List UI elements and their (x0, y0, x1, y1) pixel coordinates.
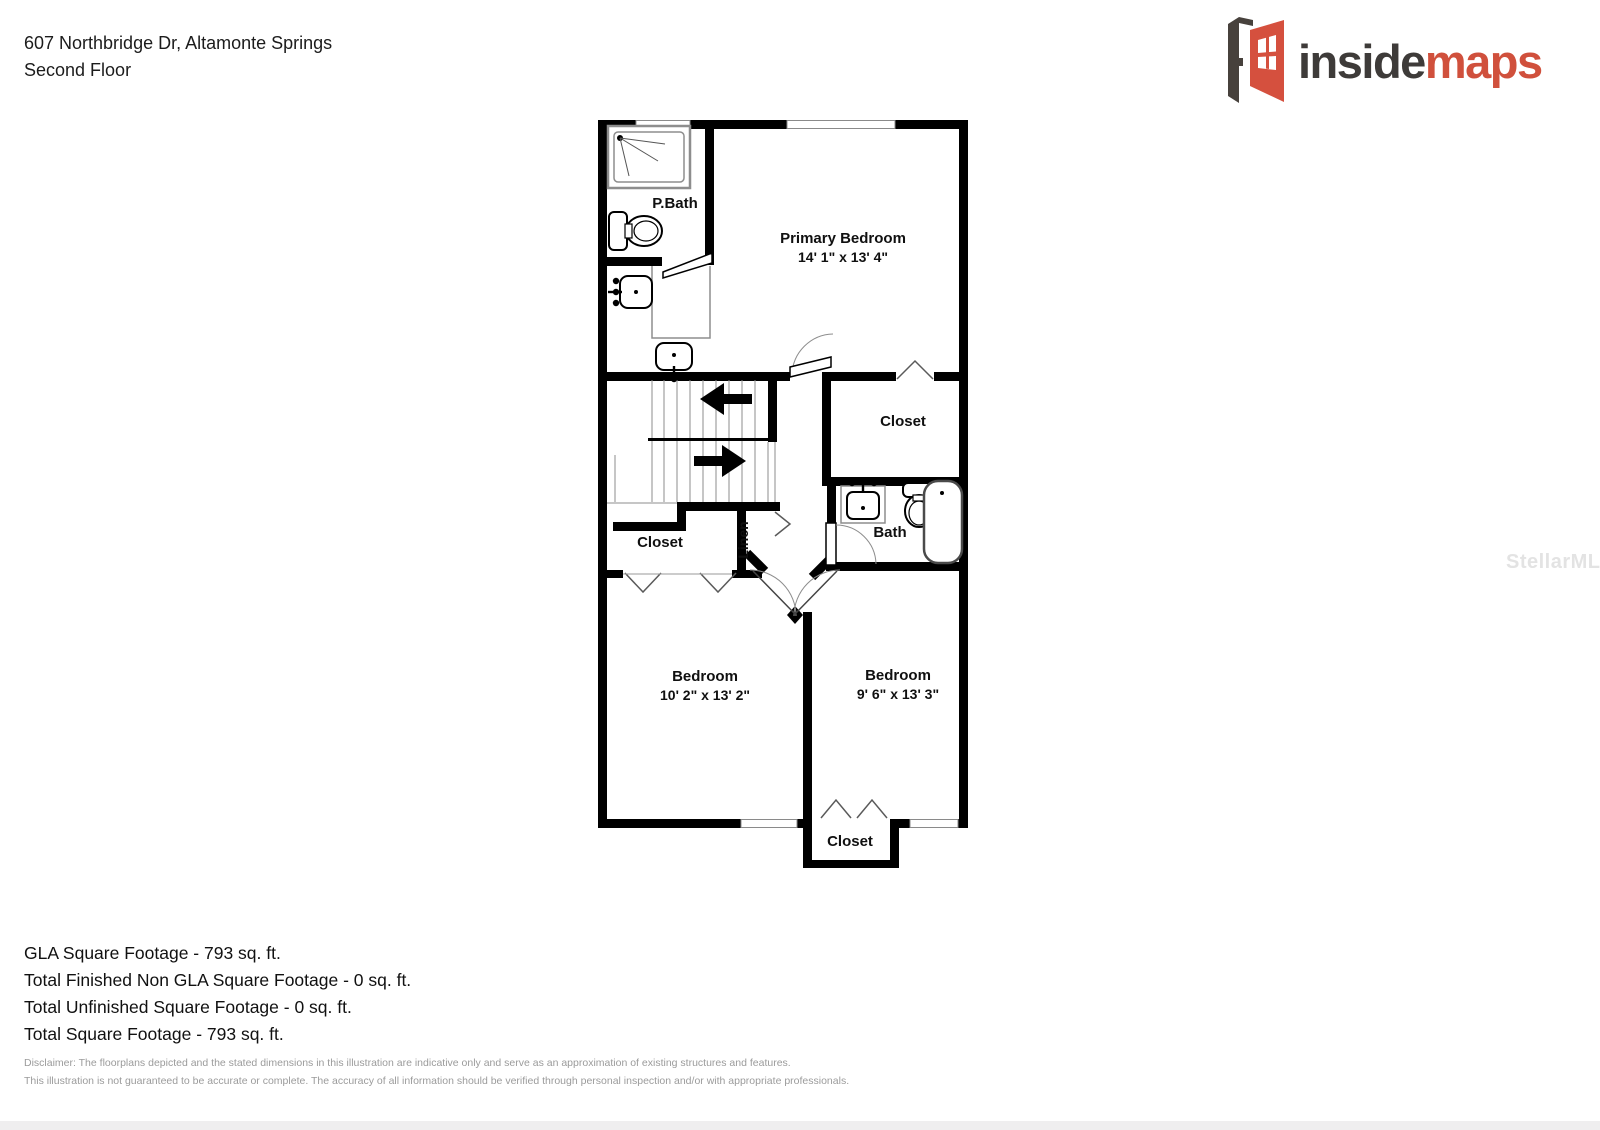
bottom-bar (0, 1121, 1600, 1130)
disclaimer-line-1: Disclaimer: The floorplans depicted and … (24, 1054, 849, 1072)
bathtub-icon (924, 481, 962, 563)
floorplan-page: 607 Northbridge Dr, Altamonte Springs Se… (0, 0, 1600, 1130)
room-dims-bedroom-left: 10' 2" x 13' 2" (660, 687, 750, 703)
disclaimer-line-2: This illustration is not guaranteed to b… (24, 1072, 849, 1090)
disclaimer: Disclaimer: The floorplans depicted and … (24, 1054, 849, 1090)
vanity-sink-icon (608, 266, 710, 382)
staircase (607, 380, 777, 503)
room-label-linen: Linen (735, 521, 751, 558)
stair-up-arrow-icon (700, 383, 752, 415)
stat-gla: GLA Square Footage - 793 sq. ft. (24, 940, 411, 967)
room-label-bedroom-right: Bedroom (865, 667, 931, 684)
room-label-bath: Bath (873, 524, 906, 541)
stat-unfinished: Total Unfinished Square Footage - 0 sq. … (24, 994, 411, 1021)
room-label-primary-bedroom: Primary Bedroom (780, 230, 906, 247)
windows (636, 121, 958, 828)
room-label-closet-bottom: Closet (827, 833, 873, 850)
bath-sink-icon (841, 480, 885, 523)
stair-down-arrow-icon (694, 445, 746, 477)
toilet-icon (609, 212, 662, 250)
room-dims-primary-bedroom: 14' 1" x 13' 4" (798, 249, 888, 265)
room-label-bedroom-left: Bedroom (672, 668, 738, 685)
room-label-closet-left: Closet (637, 534, 683, 551)
stat-total: Total Square Footage - 793 sq. ft. (24, 1021, 411, 1048)
stat-finished-non-gla: Total Finished Non GLA Square Footage - … (24, 967, 411, 994)
fixtures (608, 126, 962, 563)
room-label-pbath: P.Bath (652, 195, 698, 212)
room-label-closet-upper: Closet (880, 413, 926, 430)
room-dims-bedroom-right: 9' 6" x 13' 3" (857, 686, 939, 702)
square-footage-stats: GLA Square Footage - 793 sq. ft. Total F… (24, 940, 411, 1048)
shower-icon (608, 126, 690, 188)
